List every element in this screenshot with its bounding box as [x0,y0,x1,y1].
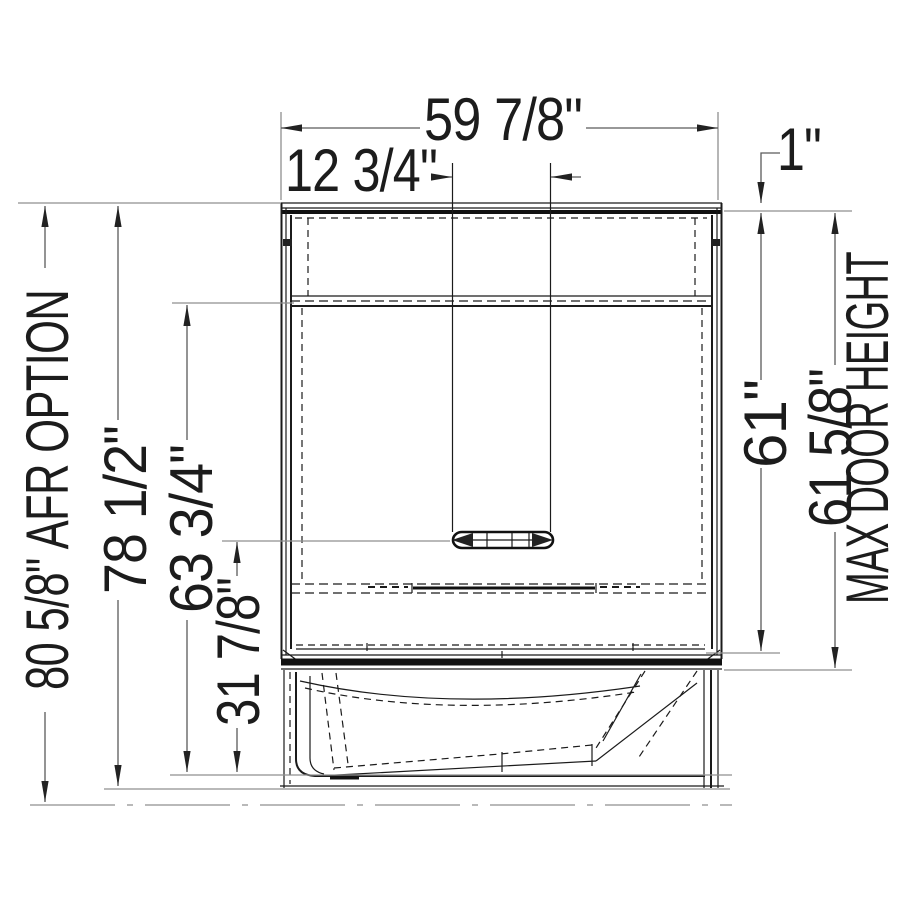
left-flange-clip [283,239,292,246]
tub-rim [281,643,722,669]
center-spacing-label: 12 3/4" [285,137,437,204]
flange-offset-label: 1" [777,116,821,183]
overall-width-label: 59 7/8" [424,86,582,153]
tub-apron [284,670,718,788]
drawing-canvas: 59 7/8" 12 3/4" 1" 61" 61 5/8" MAX DOOR … [0,0,900,900]
dimension-flange-offset: 1" [757,116,821,203]
unit-outline [280,163,724,788]
lower-panel-seam [291,583,712,593]
tub-bottom-hidden [334,745,592,768]
tub-shower-elevation-drawing: 59 7/8" 12 3/4" 1" 61" 61 5/8" MAX DOOR … [0,0,900,900]
tub-bottom-visible [318,761,596,776]
ledge-height-label: 31 7/8" [205,578,272,726]
wall-height-label: 61" [732,380,799,468]
tub-bottom-ticks [502,744,592,772]
dimension-afr-option-height: 80 5/8" AFR OPTION [14,206,81,802]
dimension-overall-height: 78 1/2" [92,206,159,786]
overall-height-label: 78 1/2" [92,426,159,594]
tub-right-slope-visible [596,683,697,761]
tub-right-wall-hidden [596,671,697,760]
dimension-wall-height: 61" [732,213,799,651]
right-flange-clip [711,239,720,246]
recessed-ledge [452,532,553,548]
upper-panel-seam [291,296,712,306]
dimension-max-door-height: 61 5/8" MAX DOOR HEIGHT [797,213,900,668]
tub-inner-rim-curve [300,681,640,699]
max-door-height-text: MAX DOOR HEIGHT [834,252,900,604]
afr-option-height-label: 80 5/8" AFR OPTION [14,290,81,690]
